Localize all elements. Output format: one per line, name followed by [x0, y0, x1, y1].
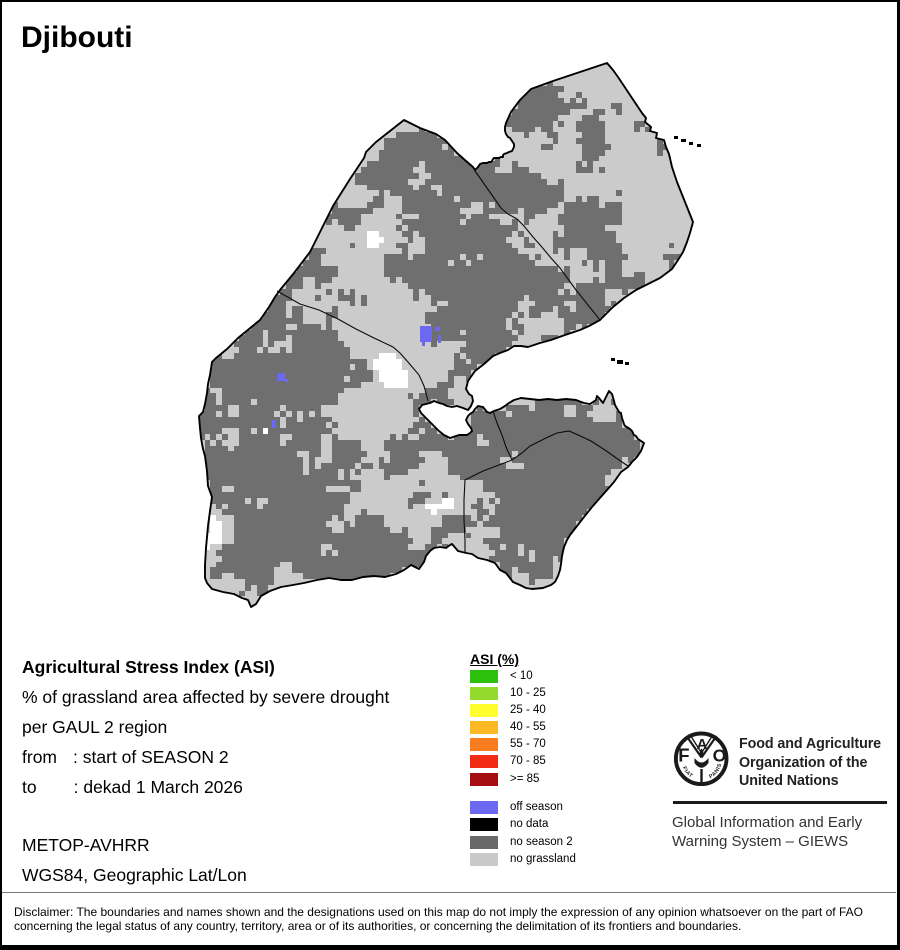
- svg-text:O: O: [713, 746, 727, 766]
- svg-text:F: F: [678, 745, 689, 766]
